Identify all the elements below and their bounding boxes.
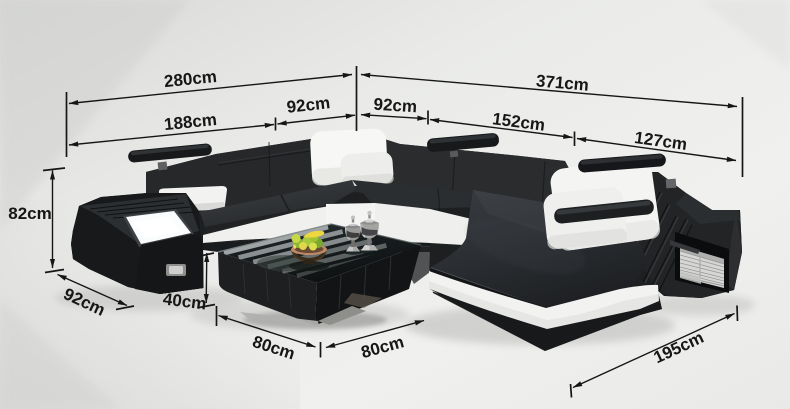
svg-text:82cm: 82cm (8, 204, 51, 223)
svg-text:92cm: 92cm (373, 95, 418, 117)
